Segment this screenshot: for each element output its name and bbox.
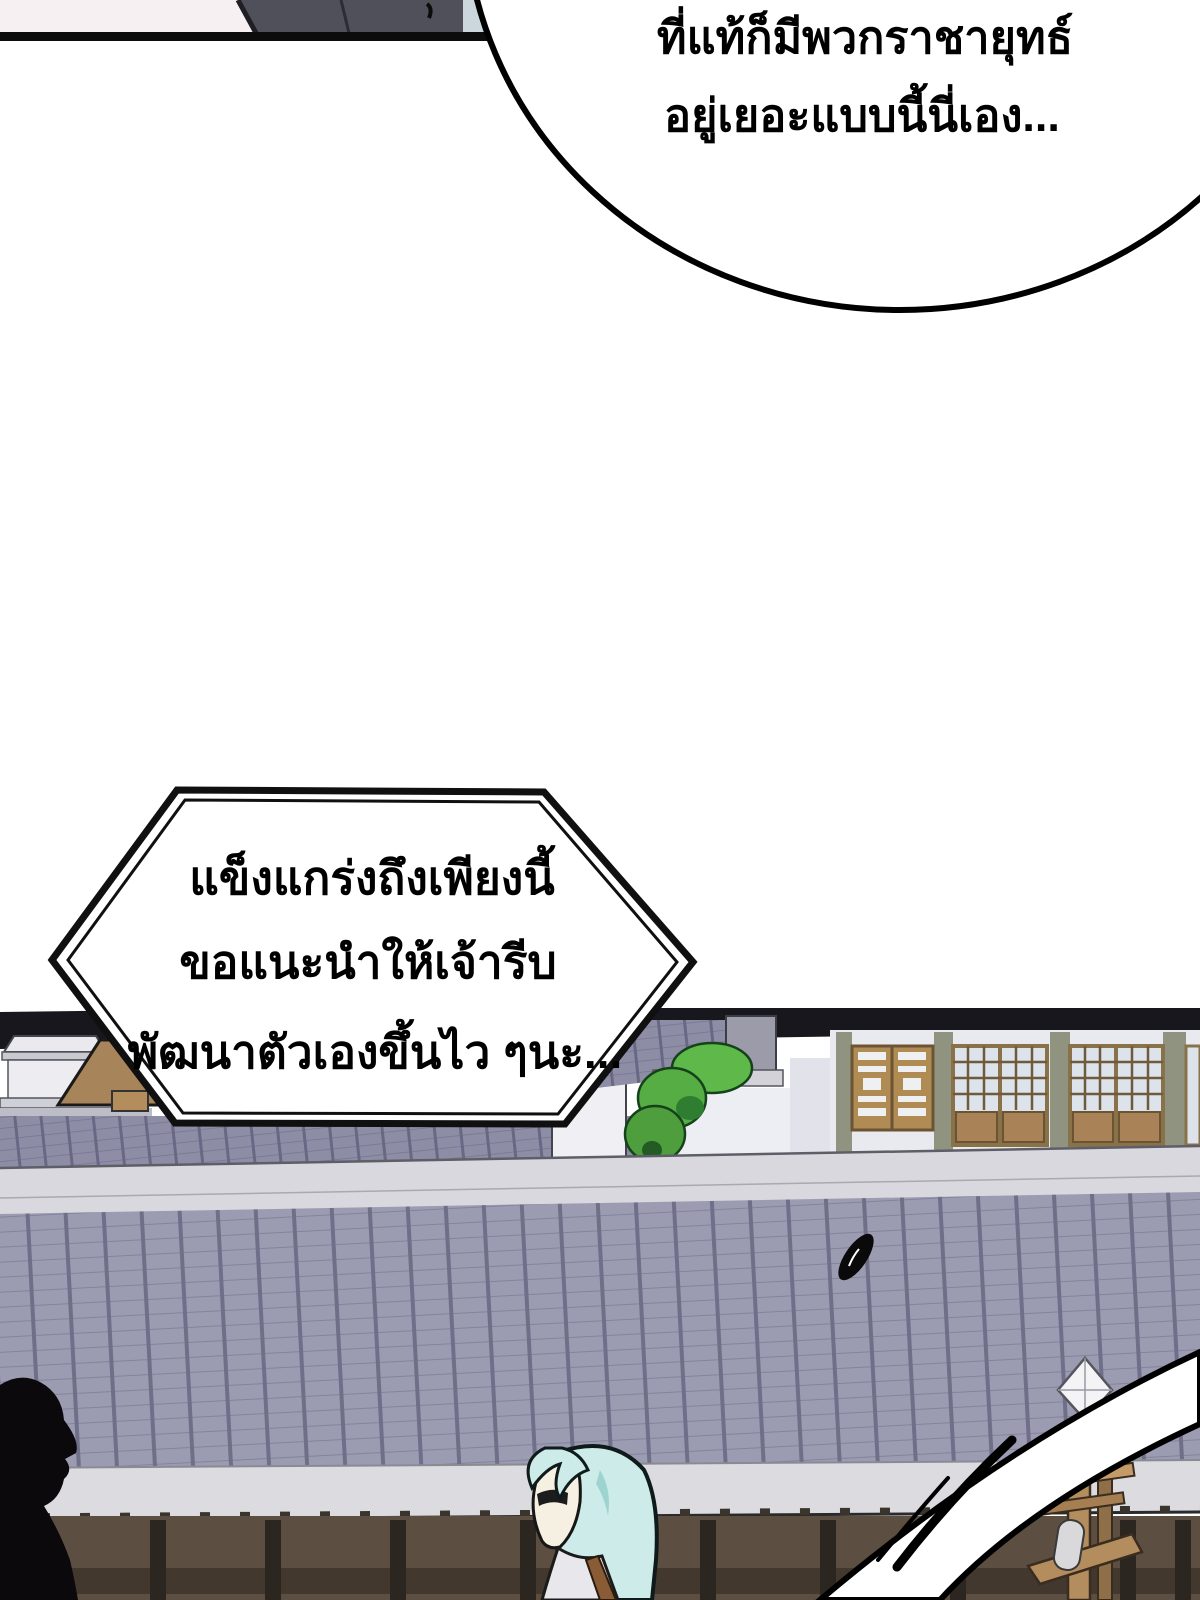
- foreground-roof: [0, 1192, 1200, 1472]
- lattice-window-building: [830, 1030, 1200, 1166]
- ornate-window: [852, 1046, 933, 1130]
- tan-box: [112, 1091, 148, 1111]
- panel-border-line: [0, 32, 494, 41]
- manga-page: ที่แท้ก็มีพวกราชายุทธ์ อยู่เยอะแบบนี้นี่…: [0, 0, 1200, 1600]
- grid-window-a: [953, 1046, 1047, 1145]
- hexagon-text-line-1: แข็งแกร่งถึงเพียงนี้: [189, 852, 554, 905]
- bubble-text-line-2: อยู่เยอะแบบนี้นี่เอง...: [664, 90, 1060, 142]
- scene-art: [0, 0, 1200, 1600]
- grid-window-b: [1070, 1046, 1163, 1145]
- grid-window-partial: [1186, 1046, 1200, 1145]
- hexagon-text-line-3: พัฒนาตัวเองขึ้นไว ๆนะ...: [128, 1026, 623, 1079]
- hexagon-text-line-2: ขอแนะนำให้เจ้ารีบ: [179, 936, 556, 989]
- cyan-haired-character: [528, 1446, 657, 1600]
- previous-panel-strip: [0, 0, 500, 41]
- bubble-text-line-1: ที่แท้ก็มีพวกราชายุทธ์: [657, 12, 1073, 64]
